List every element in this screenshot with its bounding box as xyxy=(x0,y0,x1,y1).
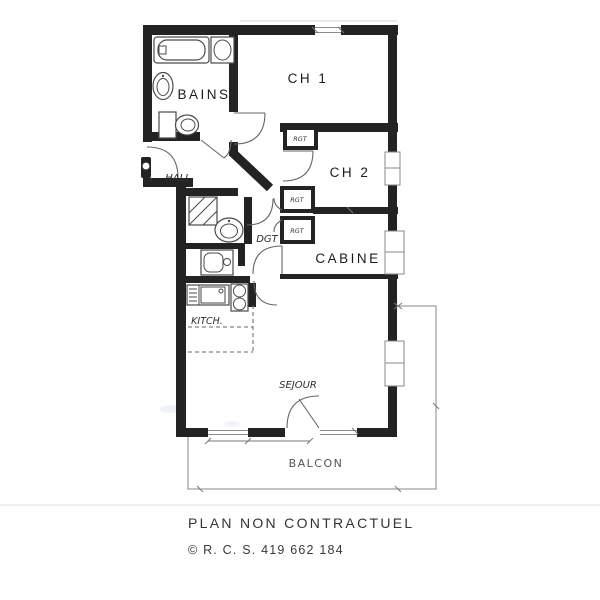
ch2-door xyxy=(283,151,313,181)
washbasin-icon xyxy=(215,218,243,242)
room-label-bains: BAINS xyxy=(177,87,230,102)
room-label-hall: HALL xyxy=(165,173,191,184)
room-label-cabine: CABINE xyxy=(315,251,380,266)
scan-artifacts xyxy=(0,21,600,505)
ch1-door xyxy=(234,113,265,144)
disclaimer-text: PLAN NON CONTRACTUEL xyxy=(188,515,414,531)
pedestal-sink-icon xyxy=(153,73,173,100)
bains-door xyxy=(201,140,231,158)
closet-label-rgt-3: RGT xyxy=(290,227,305,235)
cabine-door xyxy=(253,246,282,274)
corridor-sejour-door xyxy=(254,281,277,305)
footer: PLAN NON CONTRACTUEL © R. C. S. 419 662 … xyxy=(188,515,414,557)
window-ch1-top xyxy=(315,24,341,36)
kitchen-counter-dashed xyxy=(188,305,253,352)
room-label-sejour: SEJOUR xyxy=(279,380,317,391)
vanity-basin-icon xyxy=(201,250,233,275)
floor-plan-document: BAINS CH 1 CH 2 CABINE HALL DGT KITCH. S… xyxy=(0,0,600,600)
bathtub-icon xyxy=(154,37,209,63)
cooktop-icon xyxy=(231,284,248,311)
closet-label-rgt-1: RGT xyxy=(293,135,308,143)
window-sejour xyxy=(385,341,404,386)
window-ch2 xyxy=(385,152,400,185)
room-label-kitch: KITCH. xyxy=(191,316,223,327)
window-cabine xyxy=(385,231,404,274)
closet-label-rgt-2: RGT xyxy=(290,196,305,204)
kitchen-sink-icon xyxy=(187,285,229,305)
copyright-text: © R. C. S. 419 662 184 xyxy=(188,543,344,557)
room-label-balcon: BALCON xyxy=(289,457,344,470)
balcony-door xyxy=(287,396,319,428)
shower-icon xyxy=(189,197,217,225)
room-label-ch2: CH 2 xyxy=(330,165,371,180)
room-label-ch1: CH 1 xyxy=(288,71,329,86)
room-label-dgt: DGT xyxy=(256,234,278,245)
closet-boxes xyxy=(282,128,316,242)
washing-machine-icon xyxy=(211,37,234,63)
floor-plan-drawing: BAINS CH 1 CH 2 CABINE HALL DGT KITCH. S… xyxy=(0,0,600,600)
